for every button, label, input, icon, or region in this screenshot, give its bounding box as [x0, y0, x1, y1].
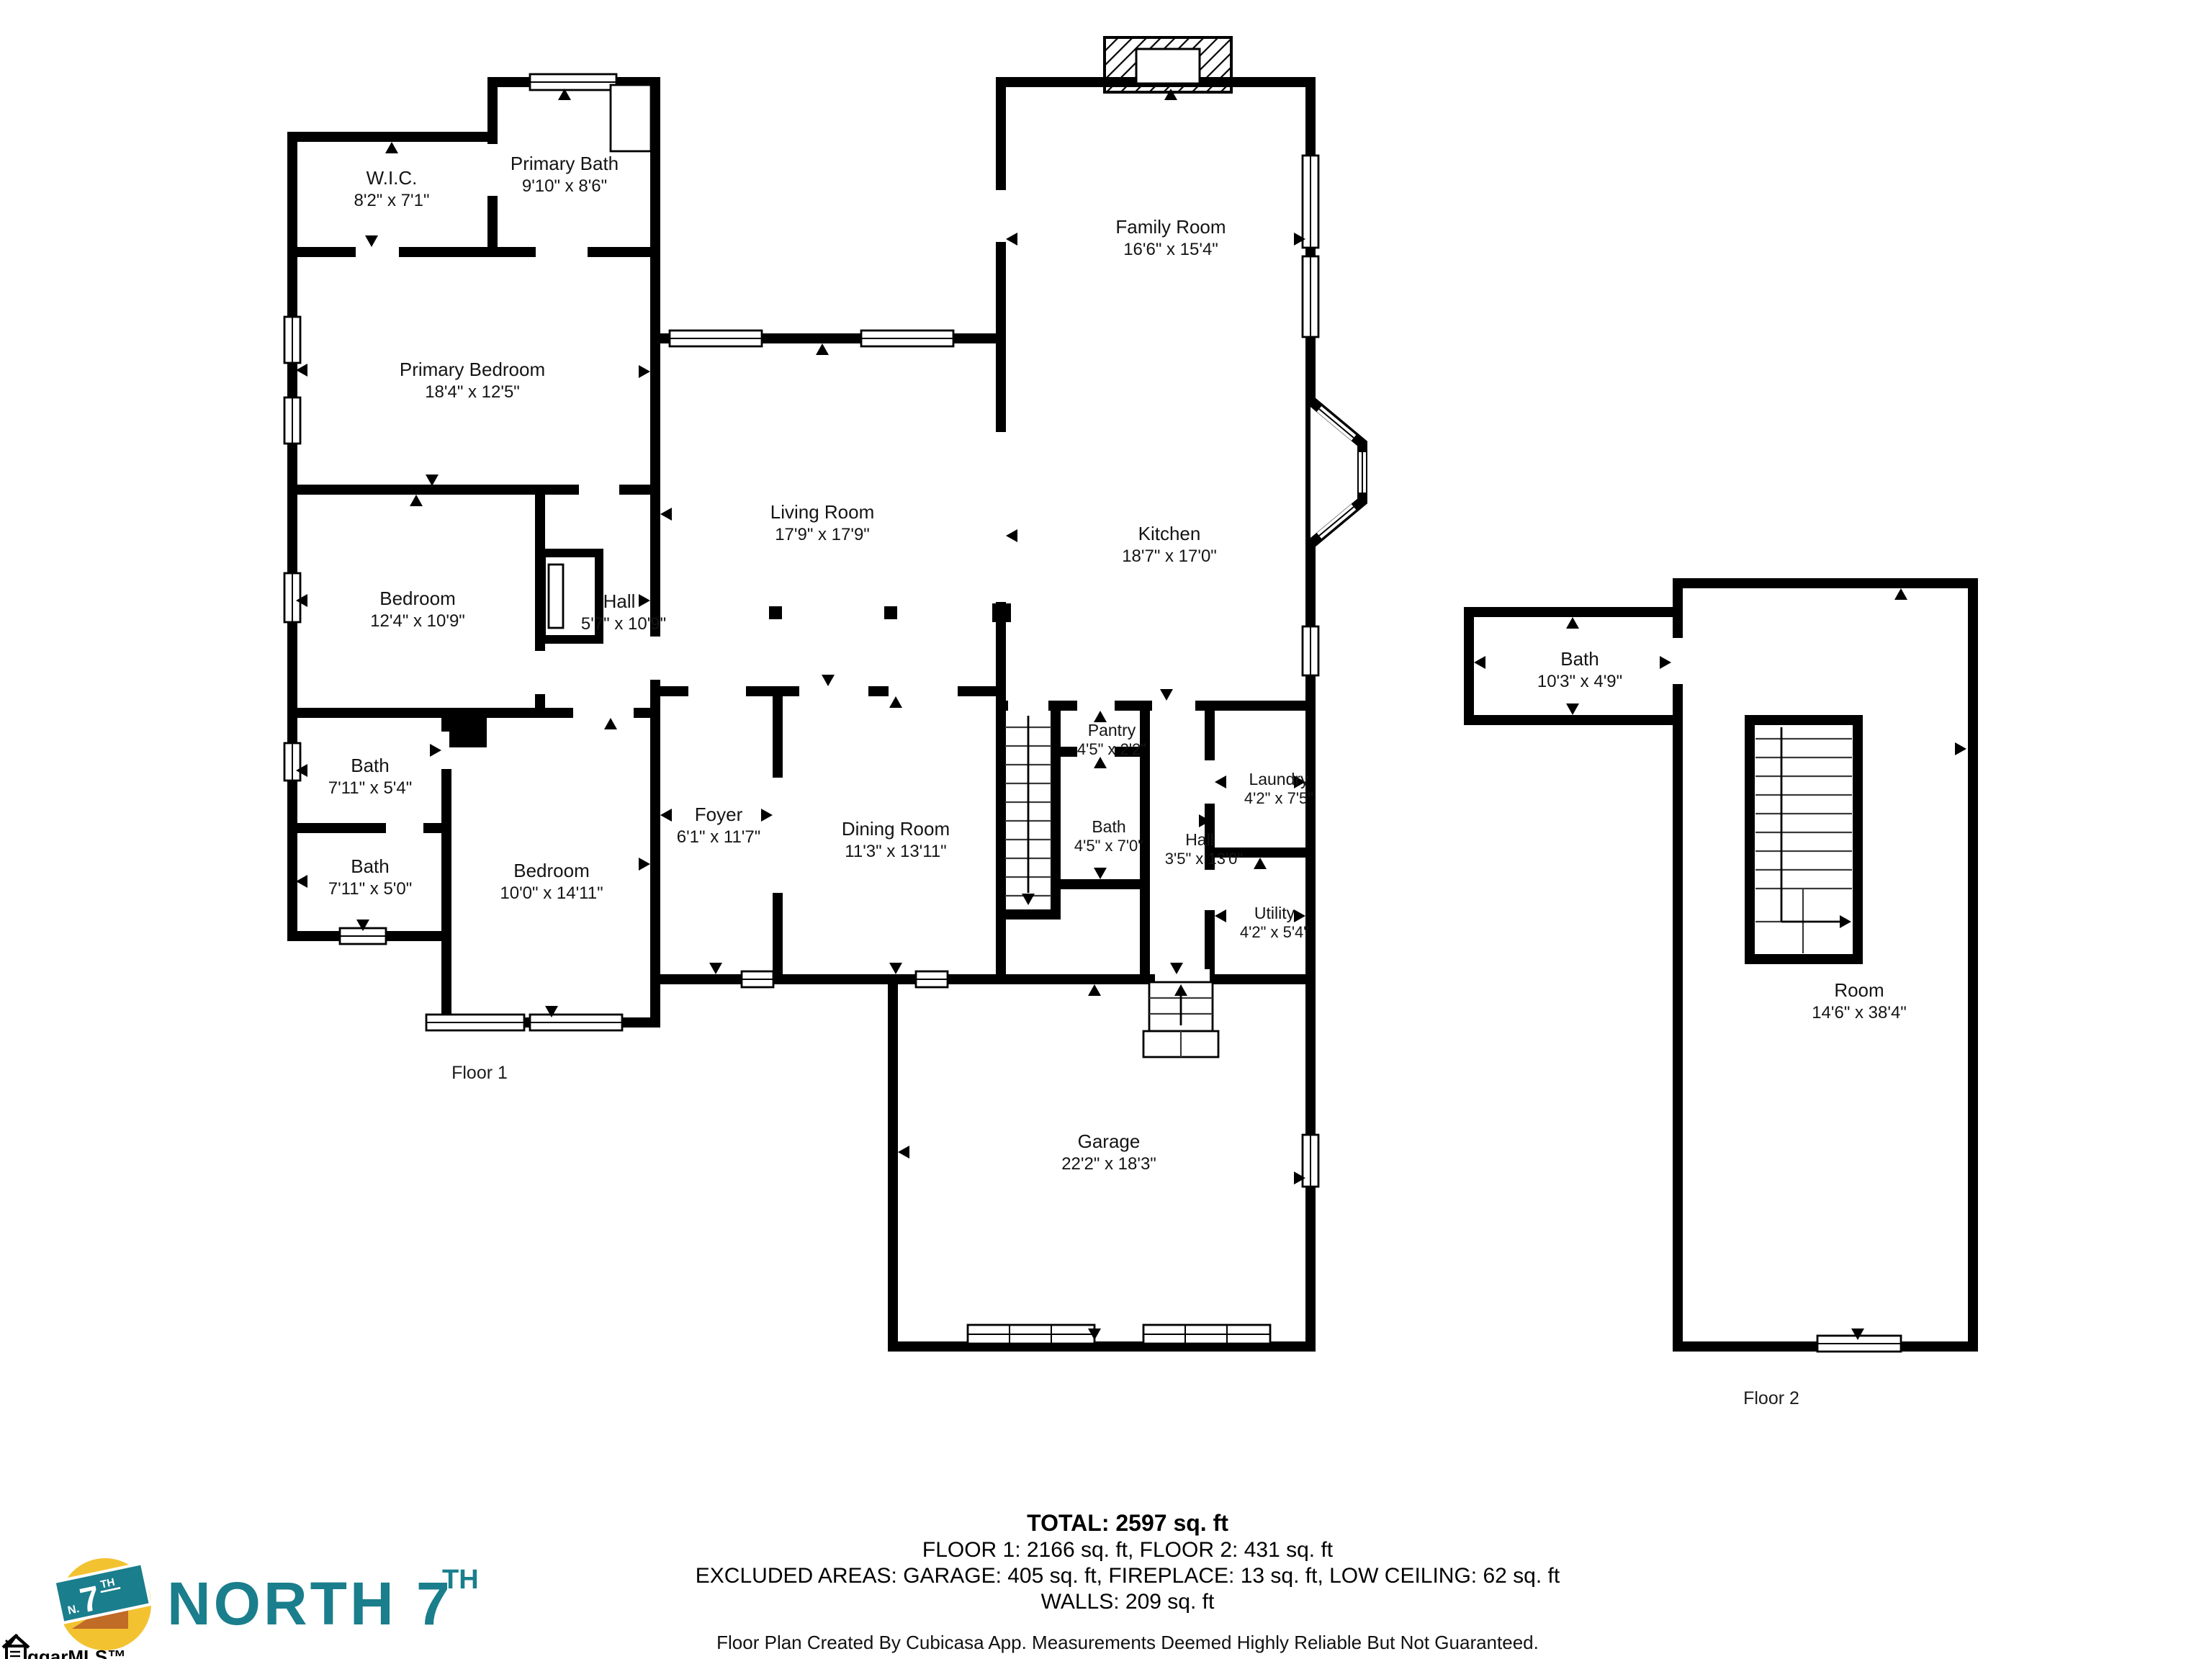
summary-excluded: EXCLUDED AREAS: GARAGE: 405 sq. ft, FIRE… [696, 1564, 1560, 1588]
label-primary-bedroom: Primary Bedroom [400, 359, 545, 380]
dims-utility: 4'2" x 5'4" [1240, 923, 1309, 941]
column [769, 606, 782, 619]
dims-primary-bath: 9'10" x 8'6" [522, 176, 607, 196]
label-pantry: Pantry [1088, 721, 1136, 739]
floor1-label: Floor 1 [451, 1063, 508, 1083]
dims-bath-floor2: 10'3" x 4'9" [1537, 672, 1622, 691]
room-floor2 [1678, 583, 1973, 1346]
dims-kitchen: 18'7" x 17'0" [1122, 547, 1217, 566]
floor1-plan: W.I.C. 8'2" x 7'1" Primary Bath 9'10" x … [284, 37, 1362, 1346]
dims-bedroom-12: 12'4" x 10'9" [370, 611, 465, 631]
dims-bedroom-10: 10'0" x 14'11" [500, 884, 603, 903]
summary-total: TOTAL: 2597 sq. ft [1027, 1510, 1228, 1536]
house-icon [3, 1635, 29, 1659]
column [992, 603, 1011, 622]
dims-living: 17'9" x 17'9" [775, 525, 870, 544]
label-wic: W.I.C. [367, 167, 418, 189]
label-kitchen: Kitchen [1138, 523, 1201, 544]
dims-room-floor2: 14'6" x 38'4" [1812, 1003, 1907, 1022]
dims-bath-50: 7'11" x 5'0" [328, 879, 413, 899]
label-hall-lower: Hall [1185, 830, 1214, 849]
fireplace [1105, 37, 1231, 92]
primary-bath-closet [611, 85, 651, 151]
label-bath-floor2: Bath [1560, 648, 1599, 670]
dims-garage: 22'2" x 18'3" [1061, 1154, 1156, 1174]
area-summary: TOTAL: 2597 sq. ft FLOOR 1: 2166 sq. ft,… [696, 1510, 1560, 1653]
logo-badge-prefix: N. [67, 1603, 81, 1617]
label-foyer: Foyer [695, 804, 743, 825]
floor2-plan: Bath 10'3" x 4'9" Room 14'6" x 38'4" Flo… [1469, 583, 1973, 1408]
label-hall-upper: Hall [603, 590, 636, 612]
dims-foyer: 6'1" x 11'7" [677, 827, 761, 847]
column [884, 606, 897, 619]
dims-bath-54: 7'11" x 5'4" [328, 778, 413, 798]
label-room-floor2: Room [1834, 979, 1884, 1001]
label-bedroom-10: Bedroom [513, 860, 590, 881]
floor-plan-canvas: W.I.C. 8'2" x 7'1" Primary Bath 9'10" x … [0, 0, 2212, 1659]
dims-family: 16'6" x 15'4" [1123, 240, 1218, 259]
dims-dining: 11'3" x 13'11" [845, 842, 946, 861]
label-laundry: Laundry [1249, 770, 1309, 788]
label-primary-bath: Primary Bath [511, 153, 619, 174]
logo-wordmark: NORTH 7 [167, 1570, 453, 1637]
summary-walls: WALLS: 209 sq. ft [1041, 1590, 1215, 1614]
entry-steps [1143, 982, 1218, 1057]
label-garage: Garage [1078, 1130, 1141, 1152]
floor2-label: Floor 2 [1743, 1388, 1799, 1408]
label-bath-54: Bath [351, 755, 390, 776]
dims-laundry: 4'2" x 7'5" [1244, 789, 1313, 807]
dims-hall-lower: 3'5" x 13'0" [1165, 850, 1243, 868]
dims-pantry: 4'5" x 2'2" [1077, 740, 1146, 758]
label-living: Living Room [770, 501, 875, 523]
watermark-text: ggarMLS™ [27, 1646, 126, 1659]
windows-floor2 [1817, 1336, 1901, 1352]
dims-hall-upper: 5'7" x 10'9" [581, 614, 666, 634]
disclaimer: Floor Plan Created By Cubicasa App. Meas… [716, 1632, 1539, 1653]
label-bath-small: Bath [1092, 817, 1125, 836]
room-family-kitchen [1001, 82, 1310, 706]
label-family: Family Room [1115, 216, 1226, 238]
label-bedroom-12: Bedroom [379, 588, 456, 609]
logo-wordmark-suffix: TH [442, 1565, 479, 1595]
dims-primary-bedroom: 18'4" x 12'5" [425, 382, 520, 402]
north7th-logo: N. 7 TH NORTH 7 TH [54, 1558, 478, 1650]
chimney-block [449, 716, 487, 747]
dims-bath-small: 4'5" x 7'0" [1074, 837, 1143, 855]
label-utility: Utility [1254, 904, 1295, 922]
label-bath-50: Bath [351, 855, 390, 877]
label-dining: Dining Room [842, 818, 950, 840]
summary-floors: FLOOR 1: 2166 sq. ft, FLOOR 2: 431 sq. f… [922, 1538, 1334, 1562]
dims-wic: 8'2" x 7'1" [354, 191, 430, 210]
